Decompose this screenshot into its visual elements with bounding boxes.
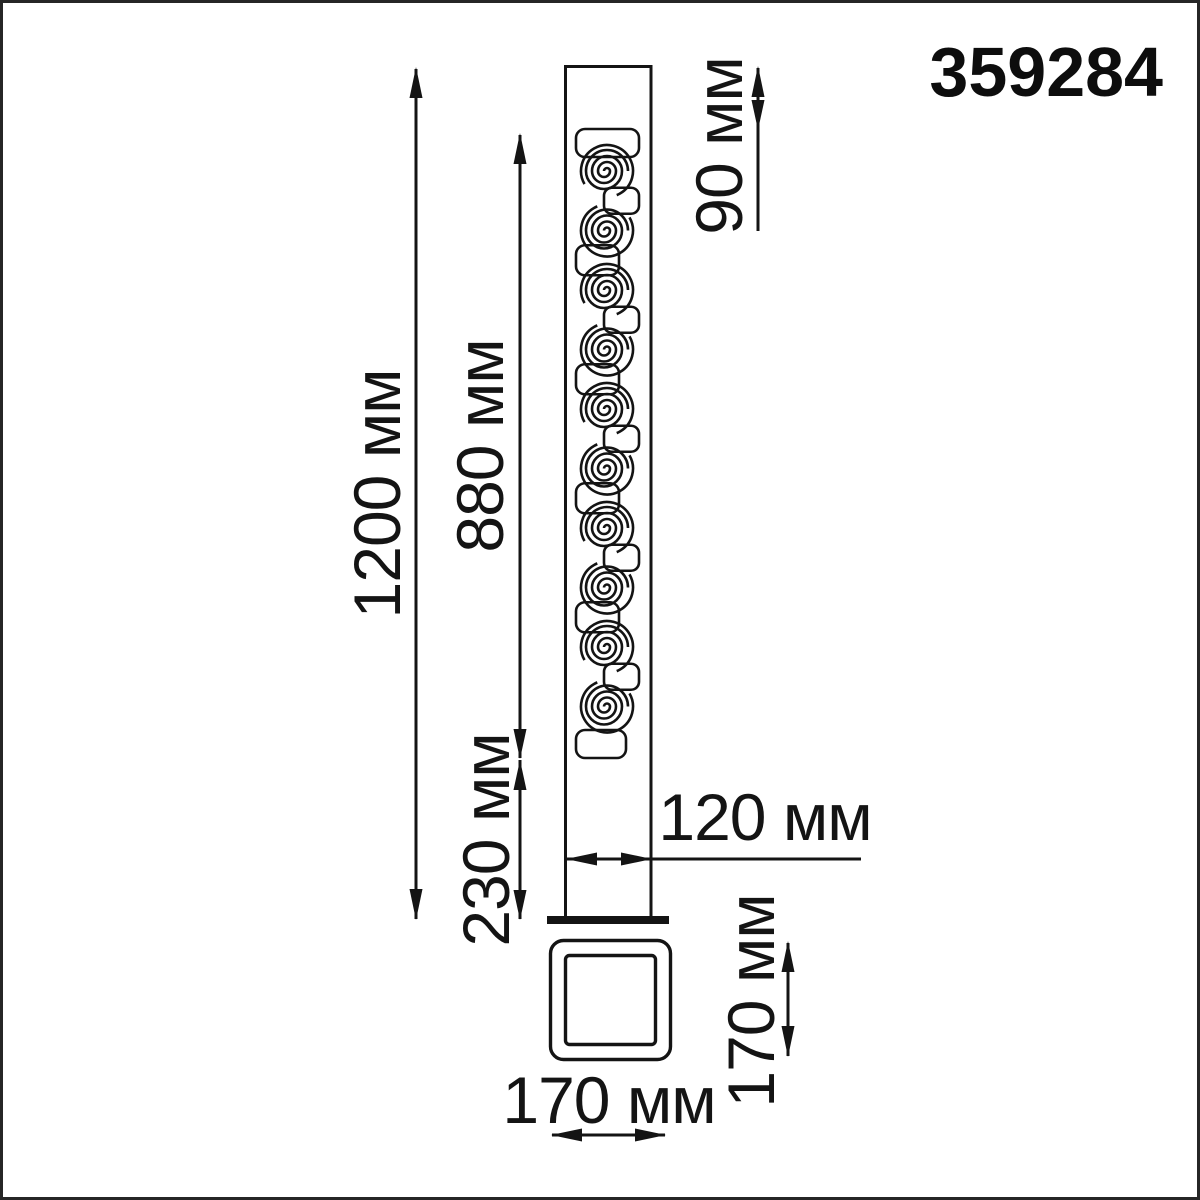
dim-label-pole-width: 120 мм xyxy=(658,784,871,850)
dim-label-bottom-section: 230 мм xyxy=(453,733,519,946)
flange-plate xyxy=(547,916,669,924)
dimension-drawing xyxy=(3,3,1200,1200)
technical-drawing-canvas: 359284 1200 мм 880 мм 90 мм 230 мм 120 м… xyxy=(0,0,1200,1200)
dim-label-total-height: 1200 мм xyxy=(344,370,410,619)
dim-label-base-depth: 170 мм xyxy=(718,894,784,1107)
base-square xyxy=(551,941,671,1060)
dim-label-ornament-height: 880 мм xyxy=(447,339,513,552)
dim-label-top-section: 90 мм xyxy=(686,57,752,235)
dim-label-base-width: 170 мм xyxy=(502,1067,715,1133)
part-number: 359284 xyxy=(929,37,1163,107)
